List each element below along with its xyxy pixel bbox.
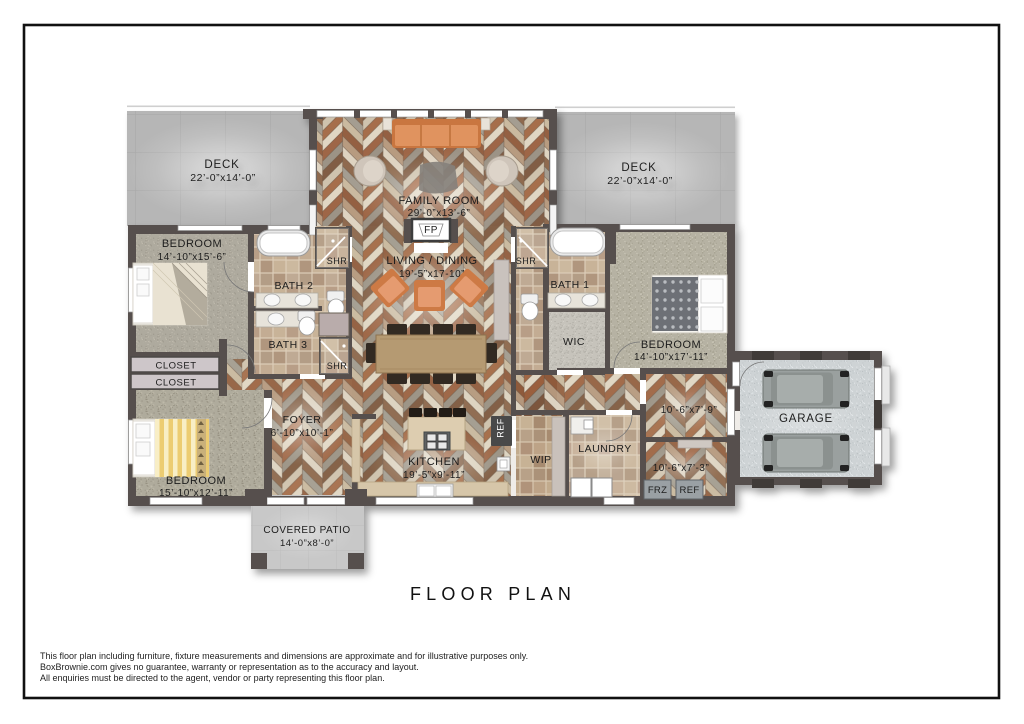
- svg-text:CLOSET: CLOSET: [155, 378, 196, 389]
- svg-text:FAMILY ROOM: FAMILY ROOM: [399, 195, 480, 207]
- svg-text:BEDROOM: BEDROOM: [166, 475, 226, 487]
- svg-text:14’-10”x17’-11”: 14’-10”x17’-11”: [634, 352, 708, 363]
- svg-text:SHR: SHR: [516, 256, 537, 266]
- svg-text:BATH 1: BATH 1: [551, 279, 590, 291]
- svg-text:GARAGE: GARAGE: [779, 413, 833, 425]
- svg-text:14’-0”x8’-0”: 14’-0”x8’-0”: [280, 538, 334, 549]
- svg-text:SHR: SHR: [327, 361, 348, 371]
- svg-text:BATH 3: BATH 3: [269, 339, 308, 351]
- svg-text:BATH 2: BATH 2: [275, 280, 314, 292]
- svg-text:REF: REF: [496, 418, 506, 438]
- svg-text:22’-0”x14’-0”: 22’-0”x14’-0”: [607, 175, 672, 187]
- svg-text:FRZ: FRZ: [648, 485, 667, 496]
- svg-text:29’-0”x13’-6”: 29’-0”x13’-6”: [408, 208, 471, 219]
- svg-text:CLOSET: CLOSET: [155, 361, 196, 372]
- svg-text:22’-0”x14’-0”: 22’-0”x14’-0”: [190, 172, 255, 184]
- svg-text:BEDROOM: BEDROOM: [641, 339, 701, 351]
- svg-text:WIC: WIC: [563, 336, 585, 348]
- svg-text:15’-10”x12’-11”: 15’-10”x12’-11”: [159, 488, 233, 499]
- svg-text:6’-10”x10’-1”: 6’-10”x10’-1”: [271, 428, 334, 439]
- svg-text:SHR: SHR: [327, 256, 348, 266]
- svg-text:WIP: WIP: [530, 454, 551, 466]
- svg-text:14’-10”x15’-6”: 14’-10”x15’-6”: [158, 252, 227, 263]
- svg-text:10’-6”x7’-3”: 10’-6”x7’-3”: [653, 463, 710, 474]
- svg-text:19’-5”x17-10”: 19’-5”x17-10”: [399, 269, 465, 280]
- svg-text:LIVING / DINING: LIVING / DINING: [386, 255, 477, 267]
- svg-text:19’-5”x9’-11”: 19’-5”x9’-11”: [403, 470, 465, 481]
- svg-text:LAUNDRY: LAUNDRY: [578, 443, 632, 455]
- svg-text:This floor plan including furn: This floor plan including furniture, fix…: [40, 651, 528, 661]
- svg-text:BoxBrownie.com gives no guaran: BoxBrownie.com gives no guarantee, warra…: [40, 662, 419, 672]
- svg-text:FP: FP: [424, 225, 438, 236]
- svg-text:DECK: DECK: [621, 162, 656, 174]
- svg-text:FOYER: FOYER: [283, 414, 322, 426]
- svg-text:All enquiries must be directed: All enquiries must be directed to the ag…: [40, 673, 385, 683]
- svg-text:KITCHEN: KITCHEN: [408, 456, 460, 468]
- svg-text:FLOOR PLAN: FLOOR PLAN: [410, 584, 576, 604]
- svg-text:DECK: DECK: [204, 159, 239, 171]
- svg-text:REF: REF: [680, 485, 700, 496]
- svg-text:BEDROOM: BEDROOM: [162, 238, 222, 250]
- svg-text:COVERED PATIO: COVERED PATIO: [263, 525, 350, 536]
- svg-text:10’-6”x7’-9”: 10’-6”x7’-9”: [661, 405, 718, 416]
